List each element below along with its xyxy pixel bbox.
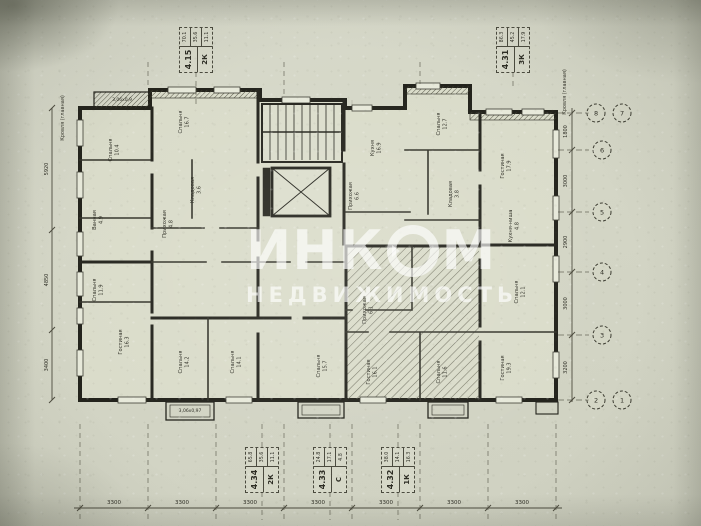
dim-value-bottom: 3300 [175,500,189,506]
dim-value-right: 3000 [563,175,569,188]
apartment-callout-4-34: 4.34 2К 65.8 35.6 11.1 [245,447,279,493]
elevator-shaft [263,168,330,216]
floorplan-drawing: Кровля (главная) Кровля (главная) Спальн… [0,0,701,526]
staircase [262,104,342,162]
dim-value-bottom: 3300 [379,500,393,506]
room-label: Ванная [92,210,98,230]
apartment-type: 1К [400,467,414,492]
apartment-area: 11.1 [268,448,278,466]
room-area: 6.1 [369,306,375,314]
dim-value-bottom: 3300 [447,500,461,506]
apartment-area: 86.3 [497,28,508,46]
room-area: 17.9 [507,160,513,171]
apartment-callout-4-32: 4.32 1К 38.0 14.1 16.3 [381,447,415,493]
room-area: 16.9 [377,142,383,153]
room-area: 11.9 [99,284,105,295]
room-label: Спальня [316,354,322,377]
room-label: Спальня [230,350,236,373]
room-label: Прихожая [362,296,368,324]
dim-value-bottom: 3300 [107,500,121,506]
room-area: 3.8 [455,190,461,198]
room-label: Прихожая [348,182,354,210]
room-label: Гостиная [500,355,506,380]
room-label: Спальня [92,278,98,301]
apartment-area: 35.6 [191,28,202,46]
axis-label: 3 [600,331,604,339]
apartment-type: 2К [198,47,212,72]
room-area: 4.9 [99,216,105,224]
axis-label: 7 [620,109,624,117]
dim-value-bottom: 3300 [311,500,325,506]
room-area: 3.6 [197,186,203,194]
room-area: 15.7 [323,360,329,371]
apartment-callout-4-31: 4.31 3К 86.3 45.2 17.9 [496,27,530,73]
apartment-area: 70.1 [180,28,191,46]
apartment-area: 65.8 [246,448,257,466]
balconies-bottom [166,402,558,420]
dim-value-left: 3400 [44,359,50,372]
dim-value-bottom: 3300 [515,500,529,506]
apartment-area: 38.0 [382,448,393,466]
room-label: Гостиная [118,329,124,354]
room-area: 16.1 [373,366,379,377]
apartment-area: 35.6 [257,448,268,466]
apartment-area: 45.2 [508,28,519,46]
axis-label: 6 [600,146,604,154]
room-label: Спальня [436,360,442,383]
dim-value-right: 3200 [563,361,569,374]
apartment-area: 24.8 [314,448,325,466]
dim-value-right: 1800 [563,125,569,138]
room-area: 12.1 [521,286,527,297]
room-label: Кухня-ниша [508,210,514,243]
room-label: Спальня [178,350,184,373]
wall-hatch-strip [150,90,260,98]
room-area: 11.6 [443,366,449,377]
room-label: Спальня [436,112,442,135]
room-label: Спальня [514,280,520,303]
room-area: 14.2 [185,356,191,367]
room-area: 14.1 [237,356,243,367]
apartment-callout-4-33: 4.33 С 24.8 17.1 4.8 [313,447,347,493]
room-label: Кладовая [190,177,196,203]
room-area: 16.3 [125,336,131,347]
floorplan-scan: Кровля (главная) Кровля (главная) Спальн… [0,0,701,526]
axis-label: 1 [620,396,624,404]
room-label: Прихожая [162,210,168,238]
apartment-area: 4.8 [336,448,346,466]
apartment-area: 16.3 [404,448,414,466]
apartment-number: 4.32 [382,467,400,492]
axis-label: 4 [600,268,604,276]
room-label: Спальня [178,110,184,133]
apartment-number: 4.15 [180,47,198,72]
dim-value-bottom: 3300 [243,500,257,506]
balcony-size-label: 3,06х0,97 [179,408,202,414]
room-area: 6.6 [355,192,361,200]
room-label: Кладовая [448,181,454,207]
apartment-area: 17.1 [325,448,336,466]
room-label: Гостиная [500,153,506,178]
apartment-number: 4.31 [497,47,515,72]
balcony-size-label: 3,06х0,9 [112,97,132,103]
axis-label: 5 [600,208,604,216]
axis-label: 2 [594,396,598,404]
room-label: Гостиная [366,359,372,384]
dim-value-left: 5920 [44,163,50,176]
apartment-area: 17.9 [519,28,529,46]
axis-label: 8 [594,109,598,117]
dim-value-right: 2900 [563,236,569,249]
room-area: 10.4 [115,144,121,155]
apartment-type: 3К [515,47,529,72]
room-label: Кухня [370,140,376,156]
apartment-area: 11.1 [202,28,212,46]
edge-label-top-left: Кровля (главная) [60,95,66,141]
apartment-type: 2К [264,467,278,492]
apartment-number: 4.34 [246,467,264,492]
room-area: 16.7 [185,116,191,127]
room-label: Спальня [108,138,114,161]
room-area: 12.7 [443,118,449,129]
apartment-area: 14.1 [393,448,404,466]
apartment-type: С [332,467,346,492]
apartment-number: 4.33 [314,467,332,492]
room-area: 4.8 [169,220,175,228]
room-area: 4.8 [515,222,521,230]
apartment-callout-4-15: 4.15 2К 70.1 35.6 11.1 [179,27,213,73]
dim-value-left: 4850 [44,274,50,287]
edge-label-top-right: Кровля (главная) [562,69,568,115]
room-area: 19.3 [507,362,513,373]
dim-value-right: 3000 [563,297,569,310]
